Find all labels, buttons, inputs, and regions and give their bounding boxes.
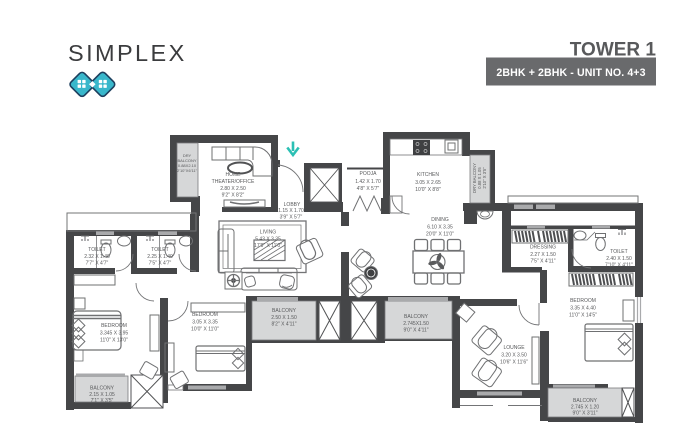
svg-text:9'2" X 8'2": 9'2" X 8'2" (222, 193, 245, 199)
svg-text:7'5" X 4'7": 7'5" X 4'7" (149, 261, 172, 267)
svg-text:7'10" X 4'11": 7'10" X 4'11" (605, 263, 633, 269)
svg-text:2.27 X 1.50: 2.27 X 1.50 (530, 252, 556, 258)
svg-text:2'10" X 3'5": 2'10" X 3'5" (482, 167, 487, 189)
svg-text:2.745X1.50: 2.745X1.50 (403, 321, 429, 327)
svg-text:9'0" X 4'11": 9'0" X 4'11" (403, 328, 428, 334)
svg-text:11'0" X 14'5": 11'0" X 14'5" (569, 313, 597, 319)
svg-text:8'2" X 4'11": 8'2" X 4'11" (271, 322, 296, 328)
svg-text:3.05 X 3.35: 3.05 X 3.35 (192, 320, 218, 326)
svg-text:1.15 X 1.70: 1.15 X 1.70 (278, 208, 304, 214)
svg-text:7'7" X 4'7": 7'7" X 4'7" (86, 261, 109, 267)
svg-text:BEDROOM: BEDROOM (570, 298, 596, 304)
svg-text:BALCONY: BALCONY (90, 386, 115, 392)
svg-text:7'1" X 3'5": 7'1" X 3'5" (91, 398, 114, 404)
svg-text:5.43 X 3.35: 5.43 X 3.35 (255, 237, 281, 243)
svg-text:4'8" X 5'7": 4'8" X 5'7" (357, 186, 380, 192)
svg-text:10'0" X 8'8": 10'0" X 8'8" (415, 187, 441, 193)
svg-text:6.10 X 3.35: 6.10 X 3.35 (427, 225, 453, 231)
svg-text:11'0" X 13'0": 11'0" X 13'0" (100, 338, 128, 344)
svg-text:LOUNGE: LOUNGE (503, 345, 525, 351)
svg-text:3.35 X 4.40: 3.35 X 4.40 (570, 306, 596, 312)
svg-text:2.25 X 1.40: 2.25 X 1.40 (147, 254, 173, 260)
svg-text:17'9" X 11'0": 17'9" X 11'0" (254, 243, 282, 249)
svg-text:THEATER/OFFICE: THEATER/OFFICE (212, 179, 255, 185)
svg-text:TOILET: TOILET (88, 247, 105, 253)
svg-text:HOME: HOME (226, 172, 242, 178)
svg-text:3.05 X 2.65: 3.05 X 2.65 (415, 180, 441, 186)
svg-text:1.42 X 1.70: 1.42 X 1.70 (355, 179, 381, 185)
svg-text:7'5" X 4'11": 7'5" X 4'11" (530, 259, 555, 265)
svg-text:2.40 X 1.50: 2.40 X 1.50 (606, 256, 632, 262)
svg-text:SIMPLEX: SIMPLEX (68, 40, 187, 66)
svg-text:DINING: DINING (431, 217, 449, 223)
svg-text:2'10"X6'11": 2'10"X6'11" (177, 168, 198, 173)
svg-text:BEDROOM: BEDROOM (101, 323, 127, 329)
svg-text:BALCONY: BALCONY (404, 314, 429, 320)
svg-text:LOBBY: LOBBY (284, 202, 301, 208)
svg-text:9'0" X 3'11": 9'0" X 3'11" (572, 411, 597, 417)
svg-text:10'6" X 11'6": 10'6" X 11'6" (500, 360, 528, 366)
svg-text:2BHK + 2BHK - UNIT NO. 4+3: 2BHK + 2BHK - UNIT NO. 4+3 (496, 67, 645, 79)
svg-text:10'0" X 11'0": 10'0" X 11'0" (191, 327, 219, 333)
svg-text:DRESSING: DRESSING (530, 245, 556, 251)
svg-text:2.32 X 1.40: 2.32 X 1.40 (84, 254, 110, 260)
svg-text:3'9" X 5'7": 3'9" X 5'7" (280, 215, 303, 221)
svg-text:BALCONY: BALCONY (573, 398, 598, 404)
svg-text:TOILET: TOILET (610, 249, 627, 255)
svg-text:2.50 X 1.50: 2.50 X 1.50 (271, 315, 297, 321)
svg-text:TOILET: TOILET (151, 247, 168, 253)
svg-text:3.345 X 3.95: 3.345 X 3.95 (100, 331, 129, 337)
svg-text:3.20 X 3.50: 3.20 X 3.50 (501, 353, 527, 359)
svg-text:BALCONY: BALCONY (272, 308, 297, 314)
svg-text:BEDROOM: BEDROOM (192, 312, 218, 318)
svg-text:LIVING: LIVING (260, 230, 277, 236)
svg-text:POOJA: POOJA (360, 171, 378, 177)
svg-text:20'0" X 11'0": 20'0" X 11'0" (426, 232, 454, 238)
svg-text:2.80 X 2.50: 2.80 X 2.50 (220, 186, 246, 192)
svg-text:KITCHEN: KITCHEN (417, 172, 439, 178)
svg-text:TOWER 1: TOWER 1 (570, 40, 657, 61)
